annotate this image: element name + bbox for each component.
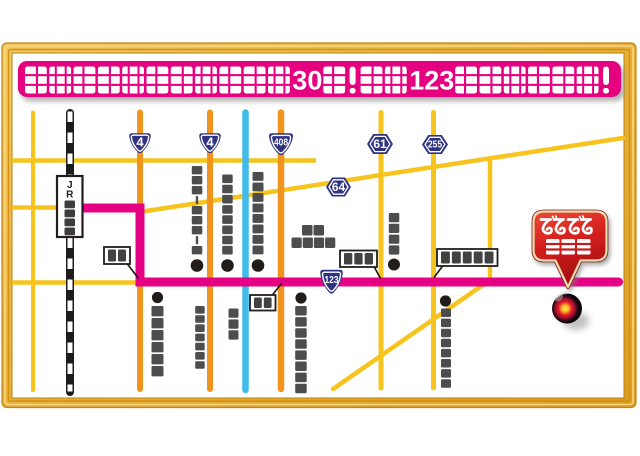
svg-text:408: 408 [274,137,288,149]
svg-text:30: 30 [292,66,322,96]
svg-text:4: 4 [136,134,144,149]
svg-text:61: 61 [373,137,387,151]
svg-text:64: 64 [332,180,346,194]
svg-text:123: 123 [324,274,338,286]
svg-text:255: 255 [428,138,443,150]
svg-text:R: R [66,190,74,201]
svg-text:123: 123 [409,66,454,96]
svg-text:4: 4 [206,134,214,149]
